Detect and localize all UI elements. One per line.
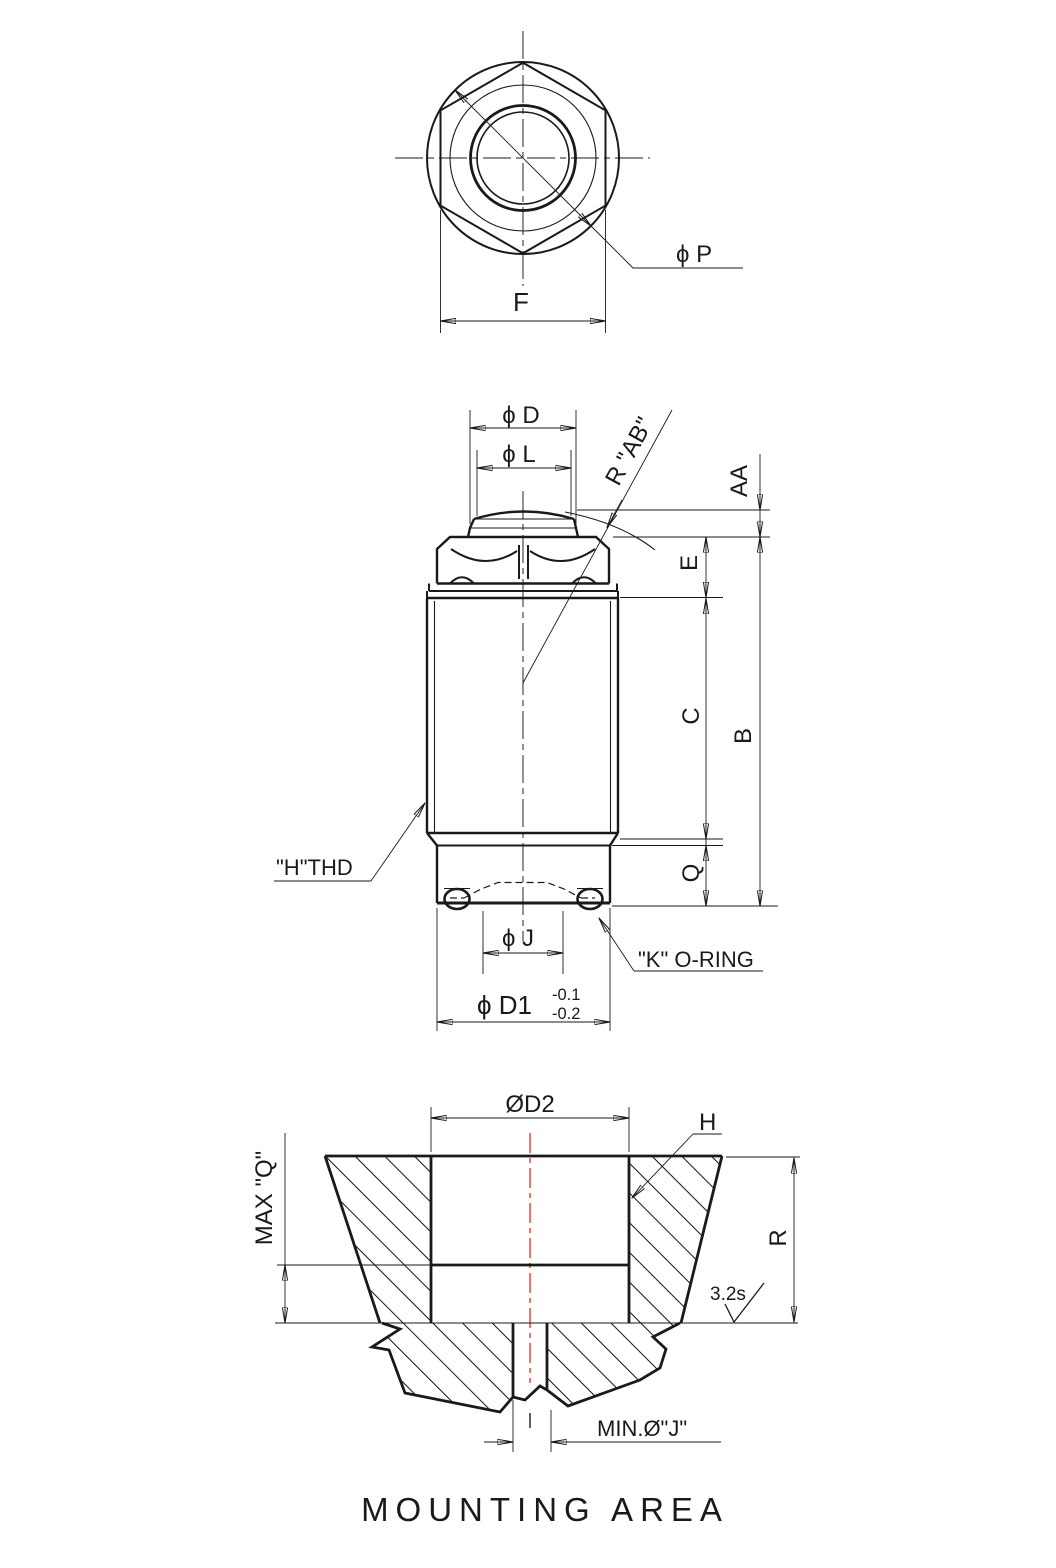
dim-label-c: C xyxy=(678,707,705,724)
dim-label-phi-d1: ϕ D1 xyxy=(477,990,532,1020)
sphere-radius-arc xyxy=(565,512,655,550)
body-pilot-chamfer-right xyxy=(610,833,618,846)
dim-label-max-q: MAX "Q" xyxy=(251,1151,278,1245)
hex-face-arc-right xyxy=(530,549,595,561)
hatch-right-wall xyxy=(629,1156,722,1323)
top-view: ϕ P F xyxy=(395,31,743,333)
dome-top-arc xyxy=(474,512,574,520)
phi-p-leader xyxy=(591,226,743,268)
body-pilot-chamfer-left xyxy=(427,833,437,846)
dim-label-r: R xyxy=(765,1229,792,1246)
label-h-thd: "H"THD xyxy=(276,855,353,880)
hex-face-arc-left xyxy=(451,549,517,561)
k-oring-leader xyxy=(599,918,634,971)
technical-drawing: ϕ P F xyxy=(0,0,1056,1568)
dim-label-b: B xyxy=(730,728,757,744)
d1-tolerance-upper: -0.1 xyxy=(552,986,580,1004)
dim-label-q: Q xyxy=(678,864,705,883)
dim-label-min-j: MIN.Ø"J" xyxy=(597,1416,687,1441)
o-ring-left xyxy=(445,889,470,909)
dim-label-phi-p: ϕ P xyxy=(676,241,712,268)
hatch-left-block xyxy=(372,1323,513,1412)
internal-hex-hidden-line xyxy=(464,883,581,899)
drawing-page: ϕ P F xyxy=(0,0,1056,1568)
label-k-oring: "K" O-RING xyxy=(638,947,754,972)
dim-label-aa: AA xyxy=(726,465,753,497)
r-ab-arrow xyxy=(607,500,622,528)
dim-label-phi-l: ϕ L xyxy=(502,441,535,468)
dim-label-f: F xyxy=(513,287,529,317)
dim-label-phi-d: ϕ D xyxy=(502,402,539,429)
dim-label-e: E xyxy=(676,555,703,571)
dim-label-r-ab: R "AB" xyxy=(600,413,659,490)
label-surface-finish: 3.2s xyxy=(710,1284,746,1305)
side-view: ϕ D ϕ L R "AB" AA B E C Q xyxy=(274,402,778,1031)
o-ring-right xyxy=(578,889,603,909)
view-title: MOUNTING AREA xyxy=(361,1491,729,1528)
d1-tolerance-lower: -0.2 xyxy=(552,1005,580,1023)
dim-label-d2: ØD2 xyxy=(505,1091,554,1118)
break-line-center xyxy=(513,1386,547,1400)
hatch-left-wall xyxy=(325,1156,431,1323)
dim-label-phi-j: ϕ J xyxy=(502,925,534,952)
mounting-area-view: ØD2 H MAX "Q" R 3.2s MIN.Ø"J" MOUNTING A… xyxy=(251,1091,800,1528)
h-thd-leader xyxy=(371,803,425,881)
label-h: H xyxy=(699,1109,716,1136)
